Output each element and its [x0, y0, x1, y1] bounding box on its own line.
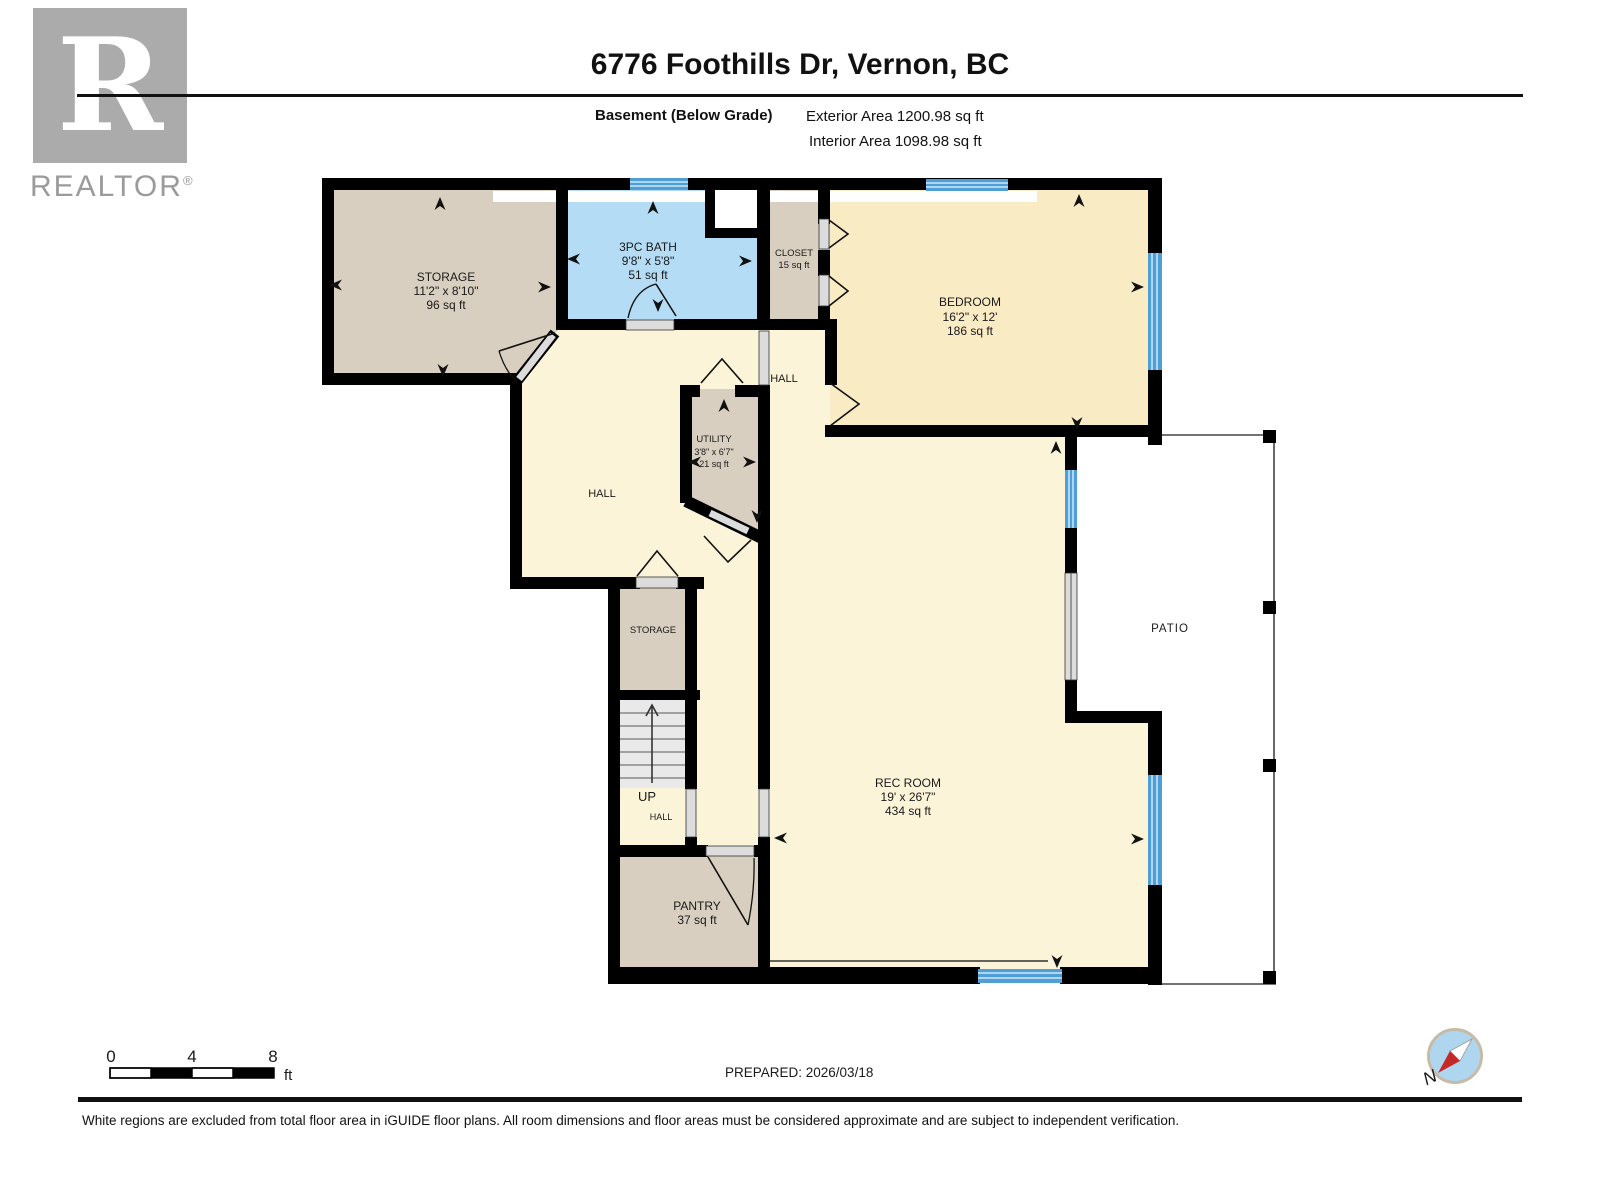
label-pantry-area: 37 sq ft	[677, 913, 717, 927]
realtor-brand-word: REALTOR	[30, 170, 183, 203]
prepared-date: PREPARED: 2026/03/18	[725, 1065, 873, 1080]
realtor-logo: R	[33, 8, 187, 163]
label-storage-main-area: 96 sq ft	[426, 298, 466, 312]
window-rec-upper-right	[1065, 470, 1077, 528]
floor-plan-page: R REALTOR® 6776 Foothills Dr, Vernon, BC…	[0, 0, 1600, 1200]
label-bath-area: 51 sq ft	[628, 268, 668, 282]
door-small-storage	[636, 577, 678, 588]
label-storage-small: STORAGE	[630, 625, 676, 636]
disclaimer-text: White regions are excluded from total fl…	[82, 1113, 1179, 1128]
label-utility-area: 21 sq ft	[699, 459, 729, 469]
label-bath-dims: 9'8" x 5'8"	[622, 254, 674, 268]
label-hall-left: HALL	[588, 488, 616, 500]
footer-divider	[78, 1097, 1522, 1102]
scale-tick-4: 4	[187, 1047, 196, 1066]
stairs	[620, 700, 685, 788]
label-hall-right: HALL	[770, 373, 798, 385]
window-bath-top	[630, 178, 688, 190]
door-corridor-rec	[759, 789, 769, 837]
window-bedroom-top	[926, 179, 1008, 191]
door-bath	[626, 320, 674, 330]
window-rec-lower-right	[1148, 775, 1162, 885]
label-rec: REC ROOM	[875, 776, 941, 790]
label-rec-dims: 19' x 26'7"	[881, 790, 936, 804]
label-bedroom-dims: 16'2" x 12'	[943, 310, 998, 324]
door-stairhall-left	[686, 789, 696, 837]
label-storage-main: STORAGE	[417, 270, 475, 284]
label-closet-area: 15 sq ft	[778, 260, 810, 271]
window-bedroom-right	[1148, 253, 1162, 370]
label-up: UP	[638, 789, 656, 804]
door-pantry	[706, 846, 754, 856]
scale-tick-0: 0	[106, 1047, 115, 1066]
label-bath: 3PC BATH	[619, 240, 677, 254]
scale-bar: 0 4 8 ft	[106, 1047, 293, 1084]
window-rec-bottom	[978, 969, 1062, 983]
label-utility-dims: 3'8" x 6'7"	[694, 447, 733, 457]
scale-unit: ft	[284, 1067, 293, 1084]
realtor-logo-letter: R	[57, 22, 163, 150]
label-hall-small: HALL	[650, 812, 673, 822]
scale-tick-8: 8	[268, 1047, 277, 1066]
label-closet: CLOSET	[775, 248, 813, 259]
label-pantry: PANTRY	[673, 899, 721, 913]
title-divider	[77, 94, 1523, 97]
floor-plan-svg: STORAGE 11'2" x 8'10" 96 sq ft 3PC BATH …	[0, 0, 1600, 1200]
page-title: 6776 Foothills Dr, Vernon, BC	[0, 48, 1600, 82]
patio-outline	[1162, 430, 1276, 984]
label-storage-main-dims: 11'2" x 8'10"	[414, 284, 479, 298]
label-rec-area: 434 sq ft	[885, 804, 932, 818]
label-utility: UTILITY	[696, 434, 732, 445]
label-bedroom-area: 186 sq ft	[947, 324, 994, 338]
label-bedroom: BEDROOM	[939, 295, 1001, 309]
compass: N	[1420, 1030, 1482, 1090]
label-patio: PATIO	[1151, 623, 1189, 635]
opening-hall	[759, 331, 769, 385]
registered-mark: ®	[183, 173, 195, 188]
realtor-brand-text: REALTOR®	[30, 170, 195, 204]
